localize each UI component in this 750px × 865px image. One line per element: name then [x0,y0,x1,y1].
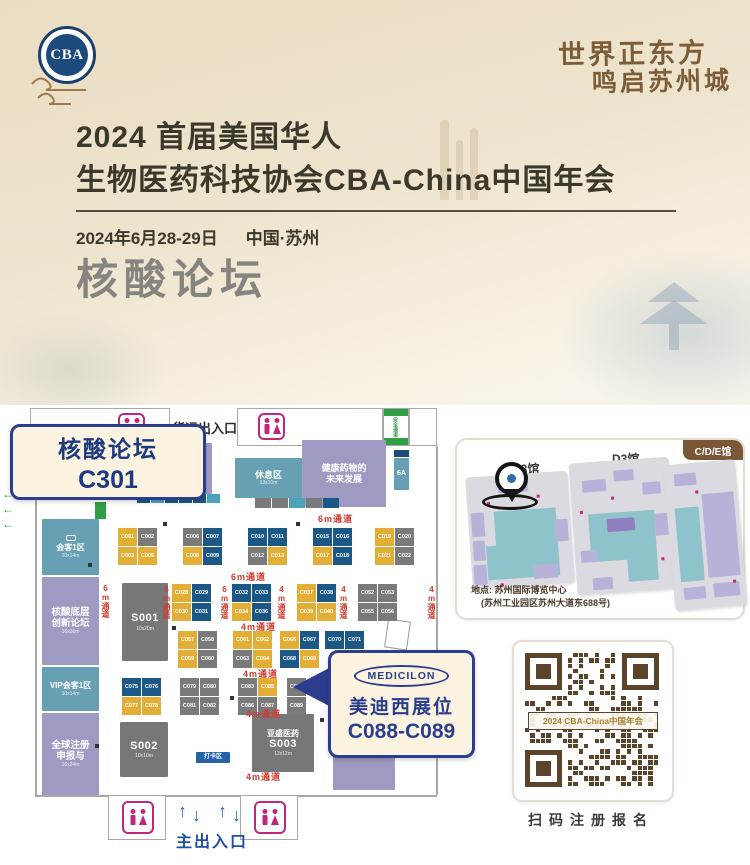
restroom-icon [254,801,286,834]
booth-c008: C008 [183,547,202,565]
title-line1: 2024 首届美国华人 [76,112,342,156]
zone-s002: S00210x10m [120,722,168,777]
booth-c059: C059 [178,650,197,668]
booth-c036: C036 [252,603,271,621]
qr-card: 2024 CBA-China中国年会 [512,640,674,802]
booth-cluster: C052C053C055C056 [358,584,397,621]
medicilon-callout: MEDICILON 美迪西展位 C088-C089 [328,650,475,758]
booth-c083: C083 [238,678,257,696]
booth-c078: C078 [142,697,161,715]
booth-c032: C032 [232,584,251,602]
callout-forum-booth: C301 [78,466,138,495]
booth-c006: C006 [183,528,202,546]
booth-cluster: C075C076C077C078 [122,678,161,715]
venue-address-line2: (苏州工业园区苏州大道东688号) [481,597,610,610]
safety-corridor-label: 安全通道 [392,417,399,437]
booth-c007: C007 [203,528,222,546]
poster: CBA 世界正东方 鸣启苏州城 2024 首届美国华人 生物医药科技协会CBA-… [0,0,750,865]
booth-c033: C033 [252,584,271,602]
booth-cluster: C070C071 [325,631,364,649]
pillar-marker [296,522,300,526]
booth-cluster: C015C016C017C018 [313,528,352,565]
booth-c082: C082 [200,697,219,715]
booth-cluster: C001C002C003C005 [118,528,157,565]
down-arrow-icon: ↓ [192,805,201,826]
booth-cluster: C032C033C034C036 [232,584,271,621]
booth-c069: C069 [300,650,319,668]
aisle-label: 4m通道 [246,770,281,783]
aisle-label: 4m通道 [241,620,276,633]
booth-c005: C005 [138,547,157,565]
woman-icon [272,809,279,826]
booth-c016: C016 [333,528,352,546]
booth-c057: C057 [178,631,197,649]
aisle-label: 4m通道 [246,707,281,720]
booth-c040: C040 [317,603,336,621]
pillar-marker [95,744,99,748]
cloud-ornament-icon [28,72,90,110]
restroom-icon [122,801,154,834]
up-arrow-icon: ↑ [218,801,227,822]
booth-c038: C038 [317,584,336,602]
aisle-label: 6m通道 [318,512,353,525]
booth-c066: C066 [280,631,299,649]
booth-c015: C015 [313,528,332,546]
left-arrow-icon: ← [2,518,14,530]
qr-code: 2024 CBA-China中国年会 [525,653,659,787]
booth-c080: C080 [200,678,219,696]
zone-nucleic-bottom-forum: 核酸底层创新论坛16x26m [42,577,99,665]
booth-c028: C028 [172,584,191,602]
booth-c079: C079 [180,678,199,696]
booth-c061: C061 [233,631,252,649]
medicilon-booth-code: C088-C089 [348,720,455,744]
stairs-shape [384,619,411,651]
green-door-marker [95,502,106,519]
restroom-icon [258,413,285,440]
pillar-marker [230,696,234,700]
booth-c003: C003 [118,547,137,565]
corridor-cap [384,438,408,445]
booth-c001: C001 [118,528,137,546]
aisle-label: 6m通道 [220,585,228,619]
zone-tag-6a: 6A [394,458,409,490]
man-icon [262,809,269,826]
booth-c031: C031 [192,603,211,621]
booth-c075: C075 [122,678,141,696]
booth-c060: C060 [198,650,217,668]
booth-c034: C034 [232,603,251,621]
booth-c068: C068 [280,650,299,668]
mini-booth [289,498,305,508]
pillar-marker [320,718,324,722]
wall-bottom [35,795,437,797]
booth-cluster: C028C029C030C031 [172,584,211,621]
zone-future-forum: 健康药物的未来发展 [302,440,386,507]
booth-c067: C067 [300,631,319,649]
medicilon-arrow-icon [293,667,331,707]
booth-c085: C085 [258,678,277,696]
booth-c020: C020 [395,528,414,546]
booth-c070: C070 [325,631,344,649]
aisle-label: 4m通道 [277,585,285,619]
booth-c077: C077 [122,697,141,715]
qr-caption: 扫码注册报名 [512,810,670,830]
title-line2: 生物医药科技协会CBA-China中国年会 [76,155,615,199]
booth-c030: C030 [172,603,191,621]
booth-c017: C017 [313,547,332,565]
pillar-marker [88,563,92,567]
woman-icon [273,418,280,435]
location-pin-tip [504,489,520,502]
divider [76,210,676,212]
booth-c011: C011 [268,528,287,546]
zone-rest-area: 休息区13x10m [235,458,302,498]
hall-badge: C/D/E馆 [683,440,743,460]
aisle-label: 4m通道 [243,667,278,680]
aisle-label: 6m通道 [231,570,266,583]
booth-c012: C012 [248,547,267,565]
medicilon-booth-label: 美迪西展位 [349,692,454,719]
qr-finder-pattern [525,750,562,787]
booth-c019: C019 [375,528,394,546]
mini-booth [323,498,339,508]
booth-c055: C055 [358,603,377,621]
pillar-marker [172,626,176,630]
corridor-cap [384,409,408,416]
booth-c081: C081 [180,697,199,715]
booth-cluster: C061C062C063C064 [233,631,272,668]
zone-vip-meeting: VIP会客1区10x14m [42,667,99,711]
mini-booth [255,498,271,508]
booth-c037: C037 [297,584,316,602]
safety-corridor: 安全通道 [383,408,409,446]
booth-c076: C076 [142,678,161,696]
venue-address-line1: 地点: 苏州国际博览中心 [471,584,567,597]
booth-cluster: C010C011C012C013 [248,528,287,565]
booth-c071: C071 [345,631,364,649]
booth-cluster: C057C058C059C060 [178,631,217,668]
booth-c022: C022 [395,547,414,565]
booth-cluster: C037C038C039C040 [297,584,336,621]
hall-e3-shape [663,459,747,611]
callout-forum-name: 核酸论坛 [58,430,158,464]
booth-c062: C062 [253,631,272,649]
main-entrance-label: 主出入口 [176,828,248,852]
booth-cluster: C019C020C021C022 [375,528,414,565]
zone-global-reg: 全球注册申报与16x24m [42,713,99,795]
booth-c009: C009 [203,547,222,565]
man-icon [130,809,137,826]
aisle-label: 4m通道 [427,585,435,619]
booth-c002: C002 [138,528,157,546]
mini-booth [207,494,220,503]
booth-cluster: C006C007C008C009 [183,528,222,565]
hall-d3-shape [569,457,678,596]
booth-c052: C052 [358,584,377,602]
wall-segment [409,408,437,446]
booth-c058: C058 [198,631,217,649]
booth-c056: C056 [378,603,397,621]
booth-c029: C029 [192,584,211,602]
pagoda-post-decoration [669,324,679,350]
venue-map-card: C/D/E馆 C3馆 D3馆 E3馆 [455,438,745,620]
booth-c053: C053 [378,584,397,602]
left-arrow-icon: ← [2,503,14,515]
cba-logo-text: CBA [46,34,88,76]
pagoda-roof-decoration [648,282,700,302]
forum-name: 核酸论坛 [76,246,268,307]
booth-cluster: C066C067C068C069 [280,631,319,668]
zone-s003: 亚盛医药S00312x12m [252,714,314,772]
booth-c064: C064 [253,650,272,668]
qr-finder-pattern [525,653,562,690]
qr-banner: 2024 CBA-China中国年会 [528,712,658,730]
man-icon [263,418,270,435]
woman-icon [140,809,147,826]
up-arrow-icon: ↑ [178,801,187,822]
pagoda-roof-decoration [640,300,708,324]
landscape-decoration [560,250,750,405]
booth-c021: C021 [375,547,394,565]
down-arrow-icon: ↓ [232,805,241,826]
mini-booth [272,498,288,508]
header: CBA 世界正东方 鸣启苏州城 2024 首届美国华人 生物医药科技协会CBA-… [0,0,750,405]
nucleic-forum-callout: 核酸论坛 C301 [10,424,206,500]
booth-c039: C039 [297,603,316,621]
aisle-label: 6m通道 [162,585,170,619]
zone-checkin: 打卡区 [196,752,230,763]
booth-cluster: C079C080C081C082 [180,678,219,715]
booth-c018: C018 [333,547,352,565]
sofa-icon [66,535,76,541]
calligraphy-line2: 鸣启苏州城 [592,61,733,99]
booth-c063: C063 [233,650,252,668]
pillar-marker [163,522,167,526]
medicilon-logo: MEDICILON [354,665,450,687]
aisle-label: 4m通道 [339,585,347,619]
booth-c013: C013 [268,547,287,565]
aisle-label: 6m通道 [101,584,109,618]
qr-finder-pattern [622,653,659,690]
booth-c010: C010 [248,528,267,546]
mountain-decoration [0,310,170,405]
mini-booth [306,498,322,508]
